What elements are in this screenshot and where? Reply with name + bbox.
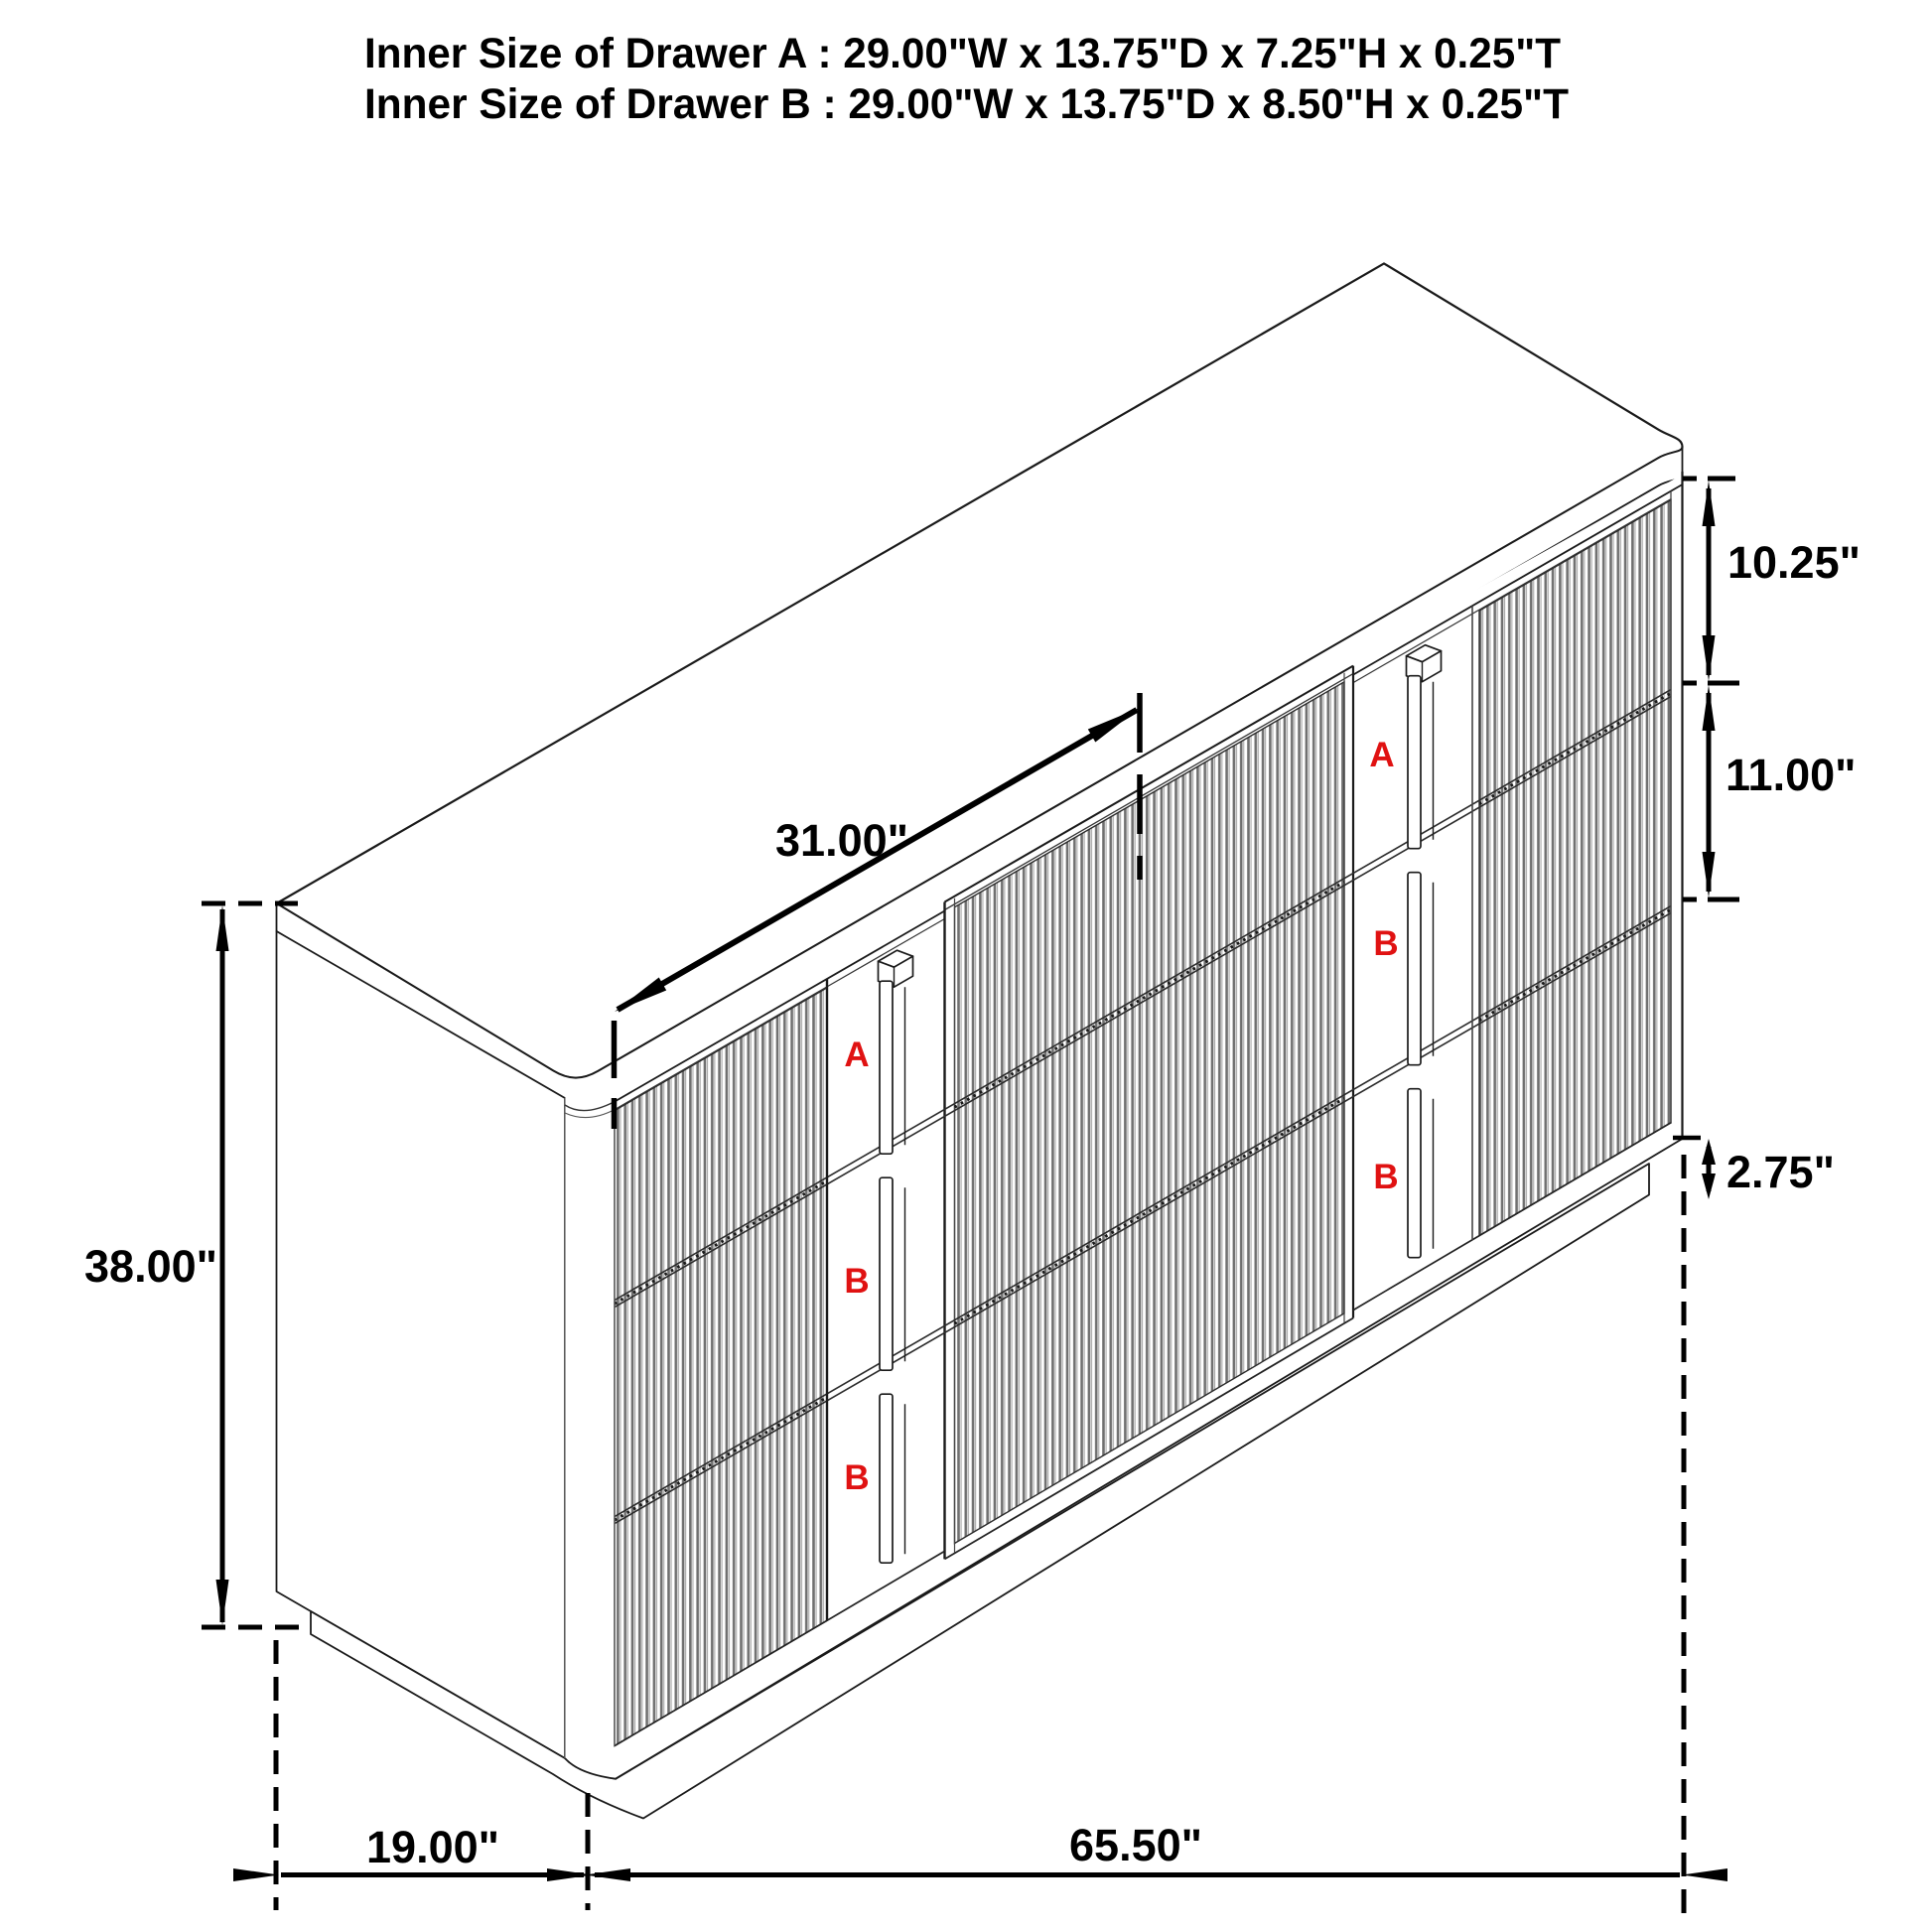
svg-text:A: A [1369,736,1394,774]
svg-text:19.00": 19.00" [366,1822,499,1872]
svg-text:31.00": 31.00" [775,815,908,866]
svg-text:Inner Size of Drawer A : 29.00: Inner Size of Drawer A : 29.00"W x 13.75… [364,30,1561,77]
svg-text:Inner Size of Drawer B : 29.00: Inner Size of Drawer B : 29.00"W x 13.75… [364,80,1569,128]
svg-text:65.50": 65.50" [1069,1820,1202,1870]
svg-text:B: B [844,1262,869,1301]
svg-text:38.00": 38.00" [84,1241,217,1292]
svg-text:2.75": 2.75" [1726,1147,1835,1197]
svg-text:10.25": 10.25" [1727,537,1861,588]
svg-text:B: B [1373,924,1398,963]
svg-text:B: B [1373,1158,1398,1196]
svg-text:11.00": 11.00" [1725,750,1856,800]
svg-text:B: B [844,1458,869,1497]
svg-text:A: A [844,1035,869,1074]
